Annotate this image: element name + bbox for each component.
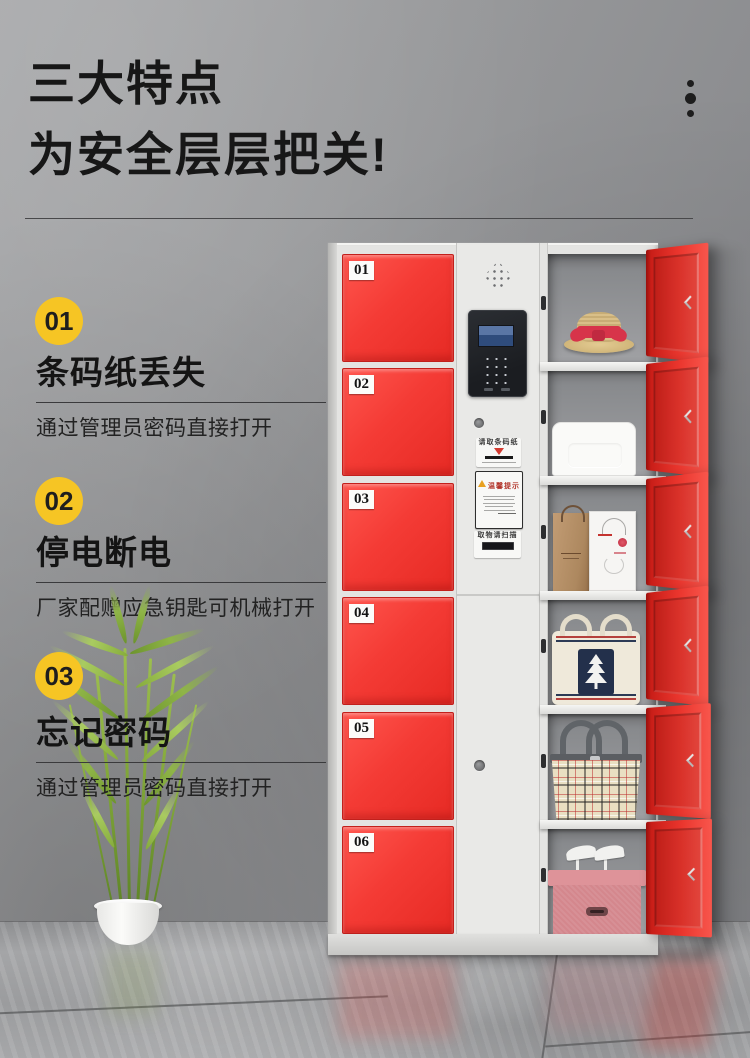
open-door-1 — [646, 243, 708, 364]
feature-number-badge: 03 — [35, 652, 83, 700]
cabinet-plinth — [328, 934, 658, 955]
feature-desc: 厂家配赠应急钥匙可机械打开 — [36, 592, 316, 622]
locker-door-05: 05 — [342, 712, 454, 820]
pink-storage-box — [553, 885, 641, 934]
control-column-seam — [457, 594, 539, 596]
sticker-notice: 温馨提示 — [475, 471, 523, 529]
door-number-label: 06 — [349, 833, 374, 852]
open-door-5 — [646, 703, 711, 819]
compartment-2 — [548, 368, 656, 476]
door-number-label: 05 — [349, 719, 374, 738]
feature-number-badge: 01 — [35, 297, 83, 345]
open-door-6 — [646, 818, 712, 937]
feature-title: 忘记密码 — [36, 706, 172, 754]
reflection-pink-box — [548, 960, 648, 1030]
keyhole-icon — [474, 418, 484, 428]
notice-title: 温馨提示 — [488, 482, 520, 491]
barcode-slot — [485, 456, 513, 459]
high-heel — [593, 844, 625, 861]
compartment-4 — [548, 597, 656, 705]
title-line-2: 为安全层层把关! — [28, 119, 389, 190]
latch-icon — [541, 296, 546, 310]
locker-door-01: 01 — [342, 254, 454, 362]
handbag-handle — [586, 720, 628, 756]
notice-text-line — [483, 503, 515, 504]
notice-text-line — [498, 513, 516, 514]
title-line-1: 三大特点 — [28, 48, 389, 119]
control-screen — [478, 325, 514, 347]
latch-icon — [541, 410, 546, 424]
locker-door-04: 04 — [342, 597, 454, 705]
door-number-label: 04 — [349, 604, 374, 623]
tree-icon — [585, 670, 607, 683]
hat-bow-knot — [592, 330, 605, 341]
latch-icon — [541, 754, 546, 768]
latch-icon — [541, 525, 546, 539]
door-number-label: 02 — [349, 375, 374, 394]
kebab-dots-icon — [680, 74, 700, 123]
reflection-open-door — [642, 958, 721, 1050]
sticker-scan-text: 取物请扫描 — [474, 531, 521, 540]
scan-slot — [482, 542, 514, 550]
feature-divider — [36, 402, 326, 403]
compartment-3 — [548, 483, 656, 591]
tote-handle — [600, 614, 632, 636]
feature-divider — [36, 762, 326, 763]
white-box — [552, 422, 636, 476]
open-door-4 — [646, 586, 708, 707]
door-number-label: 03 — [349, 490, 374, 509]
control-keypad — [483, 355, 510, 385]
notice-text-line — [484, 499, 514, 500]
feature-desc: 通过管理员密码直接打开 — [36, 772, 273, 802]
sticker-take-barcode-text: 请取条码纸 — [476, 438, 521, 447]
feature-title: 条码纸丢失 — [36, 346, 206, 394]
scene: 三大特点 为安全层层把关! 01 条码纸丢失 通过管理员密码直接打开 02 停电… — [0, 0, 750, 1058]
feature-desc: 通过管理员密码直接打开 — [36, 412, 273, 442]
page-title: 三大特点 为安全层层把关! — [28, 48, 389, 190]
warning-triangle-icon — [478, 480, 486, 487]
open-door-2 — [646, 357, 708, 478]
notice-text-line — [484, 510, 515, 511]
gift-bag — [589, 511, 636, 591]
door-number-label: 01 — [349, 261, 374, 280]
keypad-function-key — [484, 388, 493, 391]
notice-text-line — [485, 506, 513, 507]
keypad-function-key — [501, 388, 510, 391]
service-door-keyhole — [474, 760, 485, 771]
locker-door-06: 06 — [342, 826, 454, 934]
reflection-cabinet — [460, 960, 538, 1015]
title-underline — [25, 218, 693, 219]
sticker-fine-print — [482, 462, 516, 463]
canvas-tote — [552, 631, 640, 705]
feature-divider — [36, 582, 326, 583]
compartment-6 — [548, 826, 656, 934]
reflection-red-doors — [339, 960, 455, 1038]
sticker-scan: 取物请扫描 — [474, 531, 521, 558]
latch-icon — [541, 639, 546, 653]
open-door-3 — [646, 472, 708, 593]
arrow-down-icon — [494, 448, 504, 455]
latch-icon — [541, 868, 546, 882]
locker-door-03: 03 — [342, 483, 454, 591]
box-handle-slot — [586, 907, 608, 916]
sticker-take-barcode: 请取条码纸 — [476, 438, 521, 467]
feature-title: 停电断电 — [36, 526, 172, 574]
locker-door-02: 02 — [342, 368, 454, 476]
high-heel — [565, 844, 597, 861]
cabinet-side-panel — [328, 243, 337, 955]
reflection-plant — [106, 950, 158, 1016]
pink-storage-box-lid — [548, 870, 646, 886]
kraft-bag — [553, 513, 590, 591]
tote-emblem — [578, 649, 614, 695]
notice-text-line — [483, 496, 515, 497]
feature-number-badge: 02 — [35, 477, 83, 525]
plaid-handbag — [550, 760, 642, 820]
compartment-1 — [548, 254, 656, 362]
compartment-5 — [548, 712, 656, 820]
tote-handle — [560, 614, 592, 636]
